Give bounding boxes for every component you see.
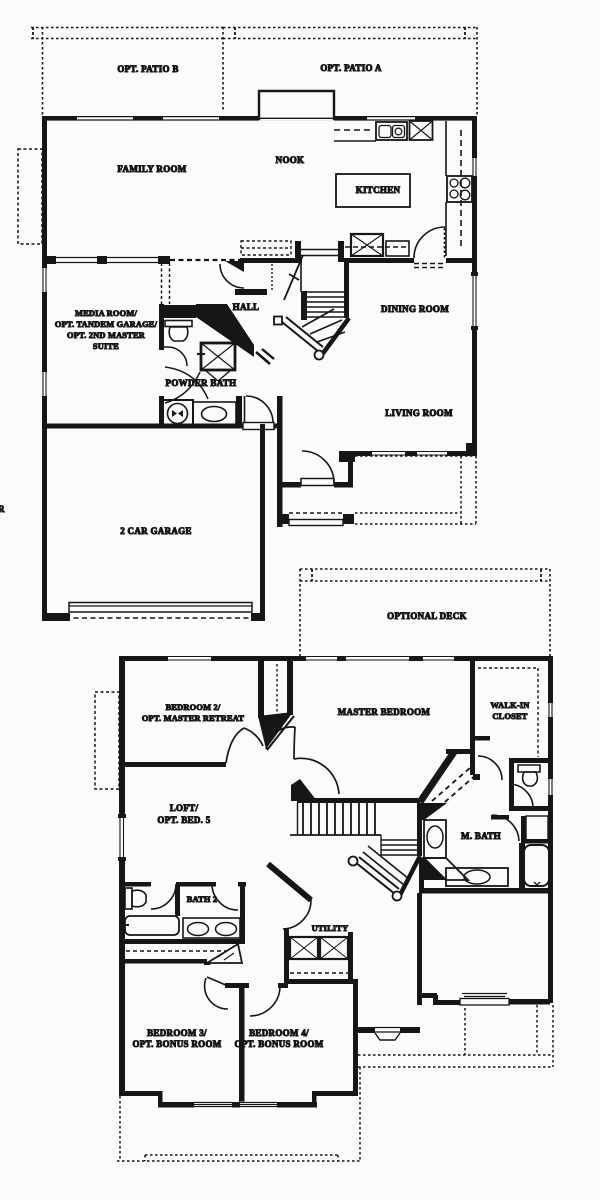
svg-text:OPT. PATIO A: OPT. PATIO A: [320, 63, 382, 73]
svg-text:CLOSET: CLOSET: [492, 712, 527, 721]
svg-text:DINING ROOM: DINING ROOM: [381, 304, 449, 314]
svg-text:BEDROOM 4/: BEDROOM 4/: [249, 1028, 309, 1038]
svg-text:2 CAR GARAGE: 2 CAR GARAGE: [120, 526, 192, 536]
svg-text:OPT. 2ND MASTER: OPT. 2ND MASTER: [67, 331, 146, 340]
svg-text:OPT. MASTER RETREAT: OPT. MASTER RETREAT: [142, 714, 245, 723]
svg-text:UTILITY: UTILITY: [312, 924, 349, 933]
svg-text:M. BATH: M. BATH: [461, 831, 501, 841]
svg-text:KITCHEN: KITCHEN: [356, 185, 401, 195]
svg-text:MASTER BEDROOM: MASTER BEDROOM: [338, 707, 431, 717]
svg-text:OPT. TANDEM GARAGE/: OPT. TANDEM GARAGE/: [55, 320, 158, 329]
svg-text:OPT. PATIO B: OPT. PATIO B: [117, 64, 178, 74]
svg-text:FAMILY ROOM: FAMILY ROOM: [117, 164, 186, 174]
svg-text:BEDROOM 2/: BEDROOM 2/: [166, 703, 221, 712]
svg-text:BATH 2: BATH 2: [187, 895, 218, 904]
svg-text:OPTIONAL DECK: OPTIONAL DECK: [387, 611, 467, 621]
svg-text:OPT. BONUS ROOM: OPT. BONUS ROOM: [234, 1039, 323, 1049]
svg-text:SUITE: SUITE: [93, 342, 119, 351]
svg-text:LOFT/: LOFT/: [170, 803, 199, 813]
svg-text:LIVING ROOM: LIVING ROOM: [385, 408, 453, 418]
svg-text:HALL: HALL: [233, 302, 260, 312]
svg-text:MEDIA ROOM/: MEDIA ROOM/: [75, 309, 137, 318]
svg-text:NOOK: NOOK: [276, 155, 305, 165]
svg-text:OPT. BONUS ROOM: OPT. BONUS ROOM: [132, 1039, 221, 1049]
svg-text:WALK-IN: WALK-IN: [490, 701, 529, 710]
svg-text:R: R: [0, 504, 5, 514]
svg-text:BEDROOM 3/: BEDROOM 3/: [147, 1028, 207, 1038]
svg-text:OPT. BED. 5: OPT. BED. 5: [157, 815, 210, 825]
